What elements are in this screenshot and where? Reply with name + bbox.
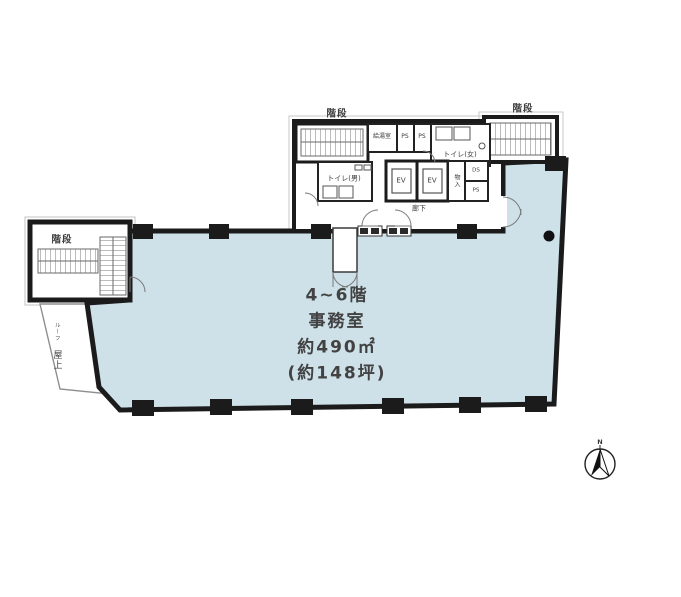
toilet-stall bbox=[436, 127, 452, 140]
label-stair-top-left: 階段 bbox=[326, 109, 347, 119]
label-ev-2: EV bbox=[427, 178, 436, 185]
label-corridor: 廊下 bbox=[412, 206, 426, 213]
label-stair-left: 階段 bbox=[51, 235, 72, 245]
label-roof-sub: ルーフ bbox=[53, 322, 59, 342]
toilet-stall bbox=[454, 127, 470, 140]
door-leaf bbox=[371, 228, 379, 234]
toilet-stall bbox=[323, 186, 337, 198]
toilet-stall bbox=[339, 186, 353, 198]
door-leaf bbox=[400, 228, 408, 234]
label-storage: 物入 bbox=[453, 174, 459, 188]
label-ps-3: PS bbox=[473, 188, 480, 194]
label-toilet-men: トイレ(男) bbox=[327, 176, 360, 183]
compass-icon bbox=[585, 445, 615, 479]
door-leaf bbox=[360, 228, 368, 234]
entrance-vestibule bbox=[333, 228, 357, 272]
office-floor-range: 4~6階 bbox=[306, 288, 369, 305]
label-stair-top-right: 階段 bbox=[512, 104, 533, 114]
label-duct: DS bbox=[472, 168, 480, 174]
label-ps-1: PS bbox=[401, 134, 408, 140]
label-kitchenette: 給湯室 bbox=[373, 134, 391, 140]
label-roof: 屋上 bbox=[52, 350, 61, 370]
compass-north-label: N bbox=[597, 439, 602, 446]
label-ps-2: PS bbox=[418, 134, 425, 140]
office-area-tsubo: (約148坪) bbox=[287, 366, 386, 383]
east-opening bbox=[500, 196, 507, 227]
office-area-sqm: 約490㎡ bbox=[297, 340, 377, 357]
label-ev-1: EV bbox=[396, 178, 405, 185]
office-room-type: 事務室 bbox=[309, 314, 366, 331]
column-dot bbox=[544, 231, 555, 242]
label-toilet-women: トイレ(女) bbox=[443, 152, 476, 159]
door-leaf bbox=[389, 228, 397, 234]
floor-plan-page: 階段 階段 階段 給湯室 PS PS トイレ(女) トイレ(男) EV EV 物… bbox=[0, 0, 681, 597]
